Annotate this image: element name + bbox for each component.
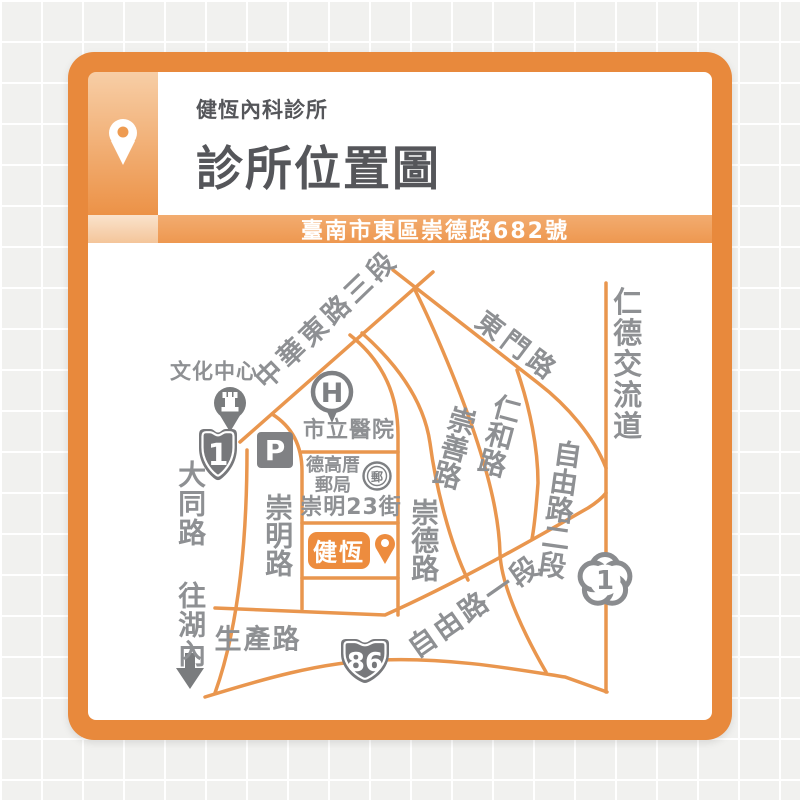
page: { "header": { "clinic_name": "健恆內科診所", "… [0,0,800,800]
clinic-label: 健恆 [313,533,365,568]
clinic-pin-icon [375,534,395,564]
hospital-letter: H [321,378,344,409]
expressway-shield: 86 [341,639,389,683]
page-title: 診所位置圖 [196,130,712,199]
freeway-flower-marker: 1 [580,555,630,604]
address-bar: 臺南市東區崇德路682號 [88,215,712,243]
card-inner: 健恆內科診所 診所位置圖 臺南市東區崇德路682號 [88,72,712,720]
location-pin-icon [99,113,147,175]
post-office-line2: 郵局 [315,475,351,496]
header: 健恆內科診所 診所位置圖 [88,72,712,215]
post-emblem-char: 郵 [371,469,383,484]
freeway-number: 1 [596,566,614,596]
road-label-rende: 仁德交流道 [609,287,640,442]
clinic-name: 健恆內科診所 [196,94,712,124]
post-office-line1: 德高厝 [306,455,360,476]
post-emblem-icon: 郵 [364,463,391,490]
parking-letter: P [265,434,286,467]
road-label-chongming23: 崇明23街 [300,496,402,520]
header-text: 健恆內科診所 診所位置圖 [158,72,712,215]
map-area: H P 郵 [88,243,712,720]
poi-label-cultural-center: 文化中心 [170,361,258,384]
expressway-number: 86 [347,648,383,678]
poi-label-city-hospital: 市立醫院 [303,419,395,443]
address-bar-accent [88,215,158,243]
road-label-shengchan: 生產路 [215,625,302,654]
road-datong-path [215,450,247,693]
header-pin-column [88,72,158,215]
road-ziyou2-path [517,370,538,539]
road-label-datong: 大同路 往湖內 [175,460,205,668]
provincial-route-number: 1 [208,438,229,473]
cultural-center-pin-icon [214,387,246,432]
poi-label-post-office: 德高厝 郵局 [306,456,360,496]
hospital-pin-icon: H [313,373,351,423]
map-card: 健恆內科診所 診所位置圖 臺南市東區崇德路682號 [68,52,732,740]
parking-icon: P [257,432,293,468]
address-text: 臺南市東區崇德路682號 [158,215,712,243]
road-label-chongde: 崇德路 [408,498,438,582]
road-expressway86-path [205,660,607,697]
road-label-chongming: 崇明路 [262,493,292,577]
